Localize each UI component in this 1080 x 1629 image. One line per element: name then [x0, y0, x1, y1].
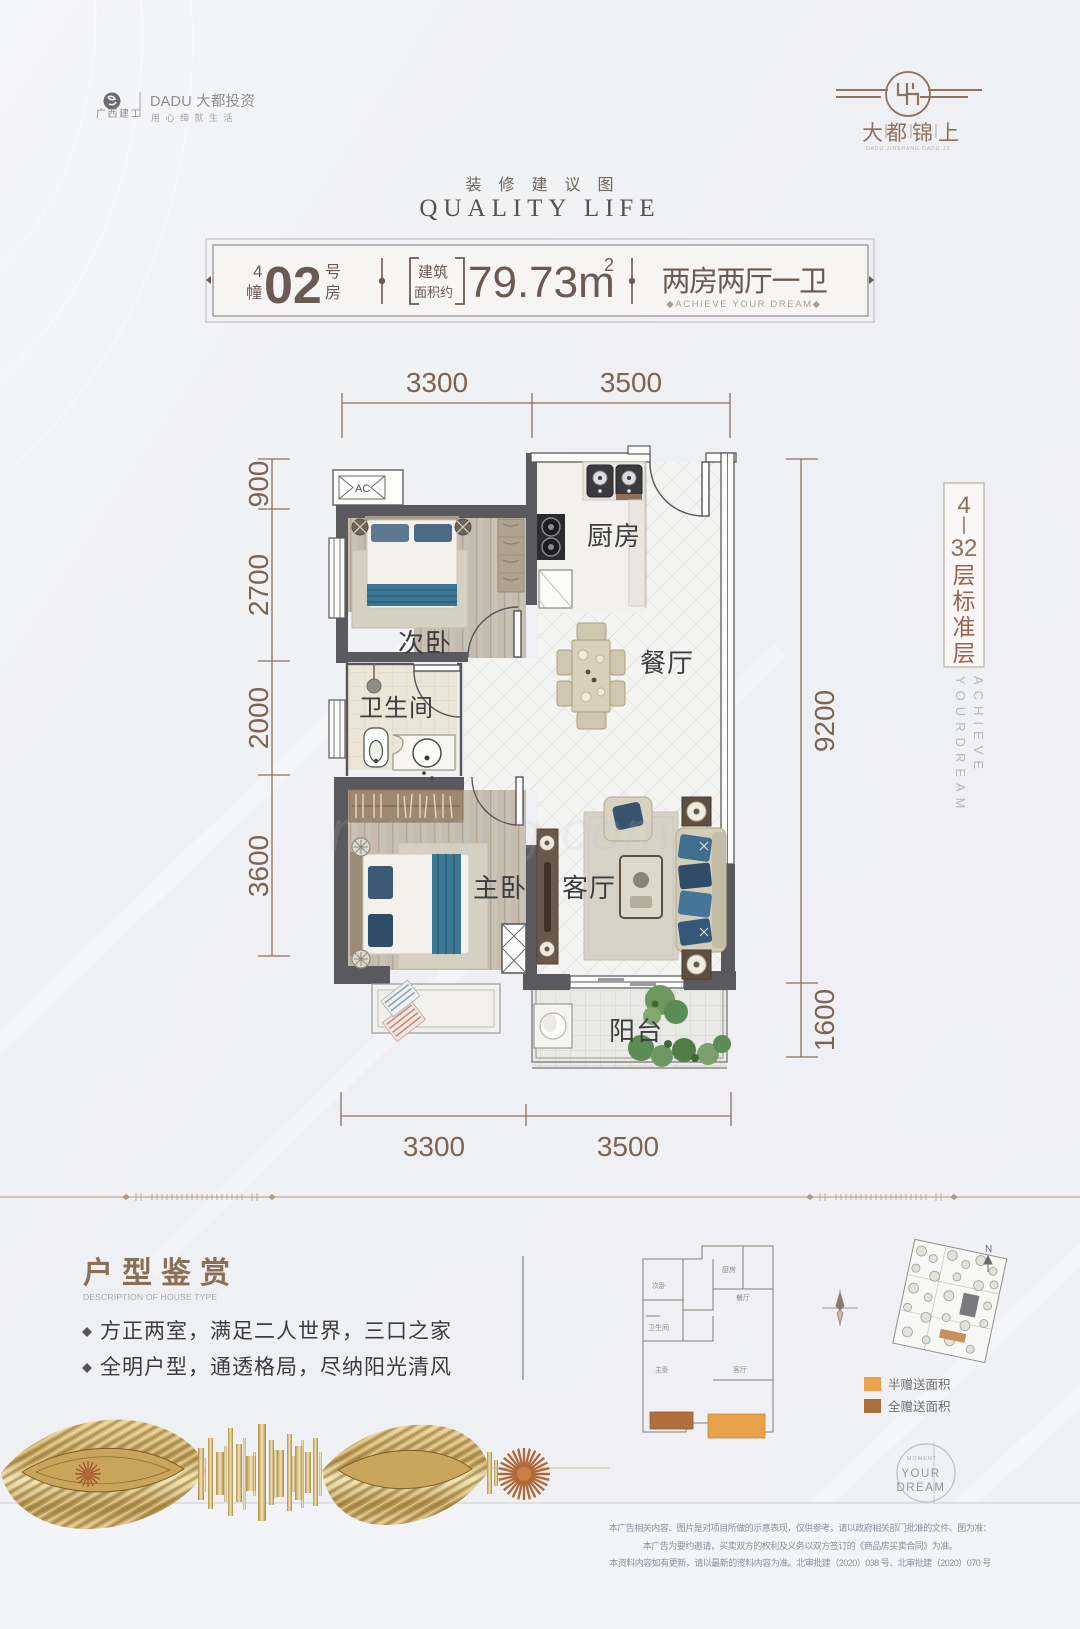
- svg-text:阳台: 阳台: [609, 1016, 663, 1046]
- svg-text:标: 标: [953, 588, 976, 614]
- svg-text:餐厅: 餐厅: [640, 648, 694, 678]
- svg-text:餐厅: 餐厅: [736, 1293, 750, 1302]
- svg-text:房: 房: [325, 284, 341, 302]
- svg-text:主卧: 主卧: [473, 873, 527, 903]
- svg-text:2: 2: [604, 255, 614, 275]
- svg-text:3500: 3500: [600, 367, 662, 398]
- svg-text:79.73m: 79.73m: [468, 258, 615, 307]
- svg-text:QUALITY LIFE: QUALITY LIFE: [419, 195, 660, 222]
- svg-text:DADU JINSHANG DADU JS: DADU JINSHANG DADU JS: [866, 146, 951, 152]
- svg-text:32: 32: [951, 535, 978, 562]
- svg-text:客厅: 客厅: [562, 873, 616, 903]
- svg-text:1600: 1600: [809, 989, 840, 1051]
- svg-text:建筑: 建筑: [418, 264, 448, 281]
- svg-text:AC: AC: [355, 483, 370, 495]
- svg-text:本广告相关内容、图片是对项目所做的示意表现，仅供参考，请以政: 本广告相关内容、图片是对项目所做的示意表现，仅供参考，请以政府相关部门批准的文件…: [609, 1522, 992, 1533]
- svg-text:N: N: [985, 1244, 992, 1255]
- svg-text:3600: 3600: [243, 835, 274, 897]
- svg-text:9200: 9200: [809, 690, 840, 752]
- svg-text:本资料内容如有更新，请以最新的资料内容为准。北审批建（202: 本资料内容如有更新，请以最新的资料内容为准。北审批建（2020）038 号、北审…: [609, 1557, 991, 1568]
- svg-text:厨房: 厨房: [587, 521, 641, 551]
- svg-text:全明户型，通透格局，尽纳阳光清风: 全明户型，通透格局，尽纳阳光清风: [100, 1356, 452, 1379]
- svg-text:层: 层: [953, 562, 976, 588]
- svg-text:面积约: 面积约: [414, 285, 453, 300]
- svg-text:准: 准: [953, 614, 976, 640]
- svg-text:幢: 幢: [246, 284, 262, 302]
- svg-text:号: 号: [325, 263, 341, 281]
- svg-text:meifang.com: meifang.com: [330, 799, 673, 862]
- svg-text:装修建议图: 装修建议图: [465, 176, 630, 194]
- svg-text:半赠送面积: 半赠送面积: [888, 1377, 951, 1392]
- svg-text:900: 900: [243, 461, 274, 508]
- svg-text:大都锦上: 大都锦上: [862, 122, 962, 145]
- svg-text:次卧: 次卧: [398, 628, 452, 658]
- svg-text:4: 4: [253, 262, 262, 281]
- svg-text:次卧: 次卧: [652, 1281, 666, 1290]
- svg-text:DADU 大都投资: DADU 大都投资: [150, 93, 255, 110]
- svg-text:主卧: 主卧: [655, 1365, 669, 1374]
- svg-text:YOUR: YOUR: [901, 1468, 940, 1480]
- svg-text:两房两厅一卫: 两房两厅一卫: [661, 265, 827, 298]
- svg-text:广西建工: 广西建工: [96, 107, 142, 120]
- svg-text:DESCRIPTION OF HOUSE TYPE: DESCRIPTION OF HOUSE TYPE: [83, 1292, 217, 1302]
- svg-text:YOURDREAM: YOURDREAM: [953, 676, 968, 815]
- svg-text:层: 层: [953, 640, 976, 666]
- svg-text:3300: 3300: [403, 1131, 465, 1162]
- svg-text:◆ACHIEVE YOUR DREAM◆: ◆ACHIEVE YOUR DREAM◆: [666, 299, 821, 310]
- svg-text:3300: 3300: [406, 367, 468, 398]
- svg-text:2000: 2000: [243, 687, 274, 749]
- svg-text:全赠送面积: 全赠送面积: [888, 1399, 951, 1414]
- svg-text:ACHIEVE: ACHIEVE: [971, 676, 986, 775]
- svg-text:卫生间: 卫生间: [648, 1323, 669, 1332]
- svg-text:户型鉴赏: 户型鉴赏: [83, 1257, 239, 1290]
- svg-text:|: |: [962, 514, 967, 534]
- svg-text:方正两室，满足二人世界，三口之家: 方正两室，满足二人世界，三口之家: [100, 1320, 452, 1343]
- svg-text:卫生间: 卫生间: [359, 695, 434, 722]
- svg-text:MOMENT: MOMENT: [907, 1456, 937, 1462]
- svg-text:DREAM: DREAM: [896, 1482, 945, 1494]
- svg-text:客厅: 客厅: [733, 1365, 747, 1374]
- svg-text:厨房: 厨房: [722, 1265, 736, 1274]
- svg-text:2700: 2700: [243, 554, 274, 616]
- svg-text:3500: 3500: [597, 1131, 659, 1162]
- svg-text:本广告为要约邀请，买卖双方的权利及义务以双方签订的《商品房买: 本广告为要约邀请，买卖双方的权利及义务以双方签订的《商品房买卖合同》为准。: [643, 1540, 958, 1551]
- svg-text:用心缔就生活: 用心缔就生活: [151, 112, 238, 123]
- svg-text:02: 02: [264, 257, 322, 315]
